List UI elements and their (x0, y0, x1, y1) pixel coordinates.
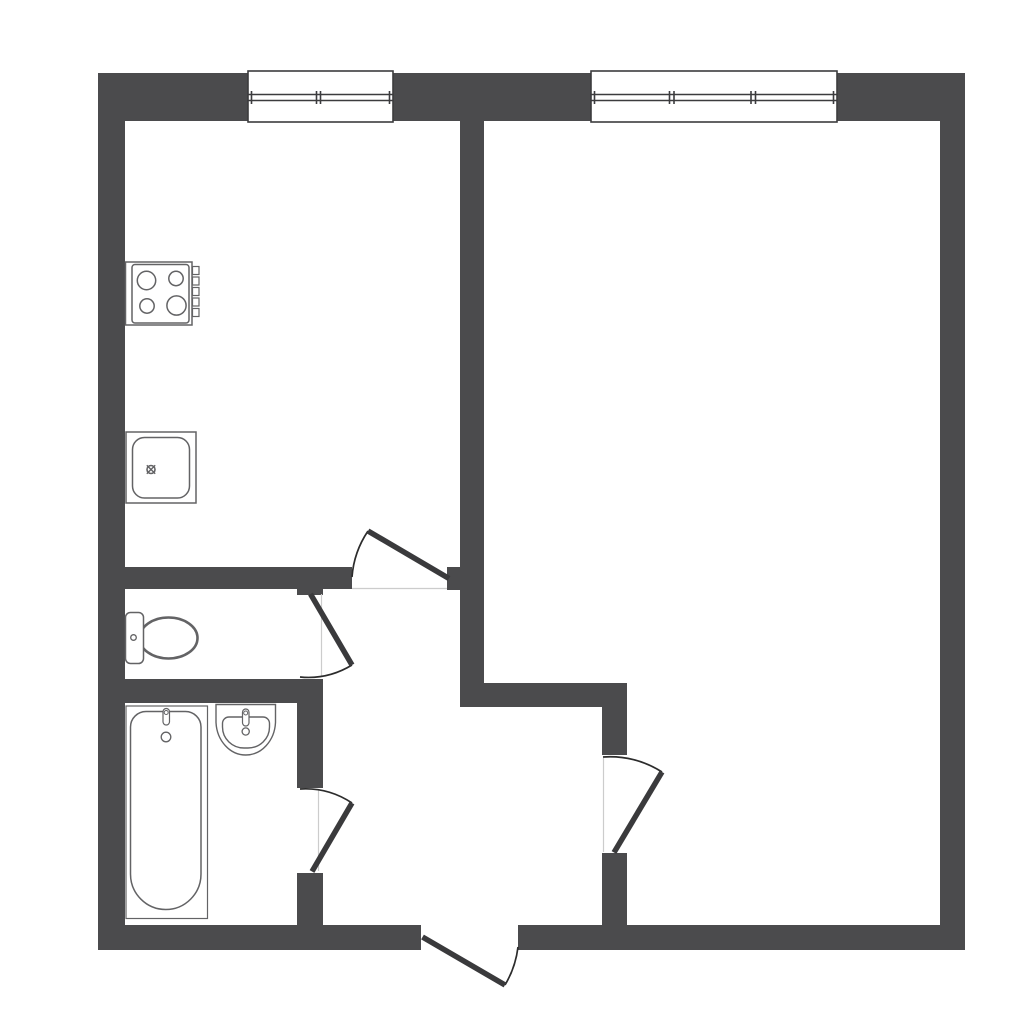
window-room-frame (591, 71, 837, 122)
wall-exterior-bottom-right (518, 925, 965, 950)
toilet-flush-button (131, 635, 137, 641)
stove-knob-2 (193, 277, 200, 285)
stove-knob-5 (193, 309, 200, 317)
stove-knob-3 (193, 288, 200, 296)
leaf-toilet-door (311, 594, 353, 665)
stove-burner-3 (140, 299, 154, 313)
bathtub-drain (161, 732, 171, 742)
bathroom-sink-faucet-cap (244, 711, 248, 715)
toilet-bowl (140, 618, 198, 659)
fixtures (126, 262, 276, 919)
walls (98, 73, 965, 950)
floor-plan-stage (0, 0, 1024, 1024)
wall-room-hall-upper (602, 707, 627, 755)
swing-arc-toilet-door (300, 665, 352, 677)
stove-burner-2 (169, 271, 183, 285)
wall-kitchen-bathroom (98, 567, 352, 589)
stove-burner-4 (167, 296, 186, 315)
bathroom-sink-drain (242, 728, 249, 735)
wall-exterior-bottom-left (98, 925, 421, 950)
kitchen-sink-basin (133, 438, 190, 499)
wall-toilet-jamb-top (297, 589, 323, 595)
wall-core-vertical (460, 121, 484, 707)
swing-arc-bathroom-door (300, 789, 352, 803)
floor-plan-svg (0, 0, 1024, 1024)
stove-burner-1 (137, 271, 155, 289)
wall-bathroom-hall-lower (297, 873, 323, 925)
wall-exterior-right (940, 73, 965, 950)
stove-knob-1 (193, 267, 200, 275)
bathtub-faucet-cap (164, 711, 168, 715)
wall-toilet-bathroom (98, 679, 320, 703)
leaf-entry-door (423, 937, 506, 985)
swing-arc-kitchen-door (352, 531, 368, 577)
leaf-kitchen-door (368, 531, 449, 579)
wall-hall-room (460, 683, 627, 707)
stove-knob-4 (193, 298, 200, 306)
swing-arc-room-door (603, 757, 662, 772)
wall-exterior-left (98, 73, 125, 950)
wall-room-hall-lower (602, 853, 627, 925)
wall-bathroom-hall-upper (297, 679, 323, 788)
leaf-room-door (614, 772, 662, 853)
swing-arc-entry-door (505, 947, 518, 985)
